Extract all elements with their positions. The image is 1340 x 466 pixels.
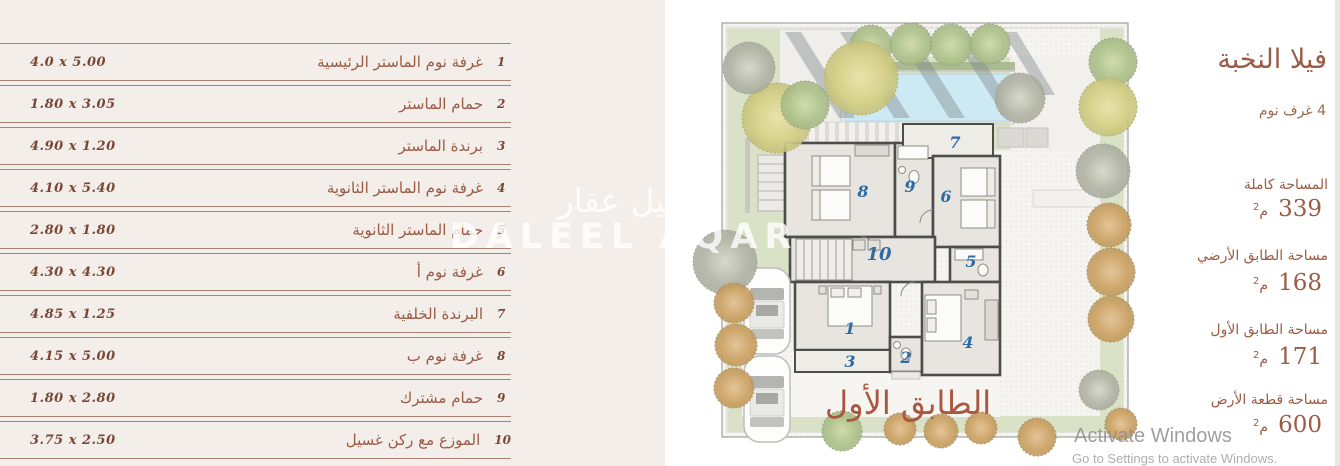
entry-steps — [892, 372, 920, 379]
ground-floor-area-label: مساحة الطابق الأرضي — [1197, 248, 1328, 264]
room-dimensions: 1.80 x 3.05 — [30, 97, 116, 112]
table-row: 1.80 x 3.05 2حمام الماستر — [0, 85, 511, 123]
window-edge-strip — [1335, 0, 1340, 466]
area-unit: م2 — [1253, 350, 1268, 368]
room-number: 5 — [497, 223, 511, 237]
room-dimensions: 4.30 x 4.30 — [30, 265, 116, 280]
tree — [1018, 418, 1056, 456]
area-unit: م2 — [1253, 418, 1268, 436]
table-row: 2.80 x 1.80 5حمام الماستر الثانوية — [0, 211, 511, 249]
tree — [1088, 296, 1134, 342]
room-label-3: 3 — [844, 352, 855, 371]
tree — [890, 23, 932, 65]
first-floor-area-label: مساحة الطابق الأول — [1210, 322, 1328, 338]
info-panel: فيلا النخبة 4 غرف نوم المساحة كاملة 339 … — [1180, 0, 1340, 466]
total-area-value: 339 م2 — [1253, 196, 1322, 222]
closet — [855, 145, 889, 156]
site-plan: الطابق الأول 1 2 3 4 5 6 7 8 9 10 — [665, 0, 1180, 466]
table-row: 4.90 x 1.20 3برندة الماستر — [0, 127, 511, 165]
room-dimensions: 4.15 x 5.00 — [30, 349, 116, 364]
closet — [985, 300, 998, 340]
tree — [824, 41, 898, 115]
room-name: غرفة نوم أ — [417, 263, 483, 281]
tree — [1087, 203, 1131, 247]
room-dimensions: 4.90 x 1.20 — [30, 139, 116, 154]
bathtub — [898, 146, 928, 159]
room-label-2: 2 — [899, 348, 911, 367]
room-number: 3 — [497, 139, 511, 153]
room-dimensions: 2.80 x 1.80 — [30, 223, 116, 238]
table-row: 3.75 x 2.50 10الموزع مع ركن غسيل — [0, 421, 511, 459]
first-floor-area-value: 171 م2 — [1253, 344, 1322, 370]
room-number: 6 — [497, 265, 511, 279]
plot-area-label: مساحة قطعة الأرض — [1211, 392, 1328, 408]
dimensions-panel: 4.0 x 5.00 1غرفة نوم الماستر الرئيسية 1.… — [0, 0, 665, 466]
room-number: 4 — [497, 181, 511, 195]
room-name: غرفة نوم الماستر الثانوية — [327, 179, 483, 197]
room-number: 10 — [494, 433, 511, 447]
tree — [723, 42, 775, 94]
area-number: 168 — [1278, 270, 1322, 296]
room-number: 2 — [497, 97, 511, 111]
table-row: 4.10 x 5.40 4غرفة نوم الماستر الثانوية — [0, 169, 511, 207]
room-dimensions: 3.75 x 2.50 — [30, 433, 116, 448]
room-name: حمام الماستر — [399, 95, 483, 113]
nightstand — [819, 286, 826, 294]
room-dimensions: 4.0 x 5.00 — [30, 55, 106, 70]
room-dimensions: 4.10 x 5.40 — [30, 181, 116, 196]
room-dimensions: 4.85 x 1.25 — [30, 307, 116, 322]
floorplan-brochure: 4.0 x 5.00 1غرفة نوم الماستر الرئيسية 1.… — [0, 0, 1340, 466]
interior-stairs — [796, 239, 852, 280]
sink — [899, 167, 906, 174]
table-row: 4.0 x 5.00 1غرفة نوم الماستر الرئيسية — [0, 43, 511, 81]
tree — [970, 24, 1010, 64]
floor-caption: الطابق الأول — [825, 383, 991, 422]
area-number: 339 — [1278, 196, 1322, 222]
room-dimensions: 1.80 x 2.80 — [30, 391, 116, 406]
room-name: الموزع مع ركن غسيل — [346, 431, 481, 449]
area-number: 171 — [1278, 344, 1322, 370]
room-number: 7 — [497, 307, 511, 321]
table-row: 4.85 x 1.25 7البرندة الخلفية — [0, 295, 511, 333]
nightstand — [874, 286, 881, 294]
room-name: غرفة نوم ب — [407, 347, 483, 365]
activate-windows-hint: Go to Settings to activate Windows. — [1072, 451, 1277, 466]
room-label-5: 5 — [965, 252, 976, 271]
table-row: 1.80 x 2.80 9حمام مشترك — [0, 379, 511, 417]
room-label-7: 7 — [949, 133, 960, 152]
table-row: 4.30 x 4.30 6غرفة نوم أ — [0, 253, 511, 291]
room-label-4: 4 — [962, 333, 973, 352]
paving-tiles — [998, 128, 1048, 147]
tree — [781, 81, 829, 129]
bedrooms-subtitle: 4 غرف نوم — [1259, 103, 1326, 119]
toilet — [978, 264, 988, 276]
tree — [1076, 144, 1130, 198]
tree — [1079, 370, 1119, 410]
nightstand — [965, 290, 978, 299]
car — [744, 356, 790, 442]
tree — [1079, 78, 1137, 136]
room-number: 8 — [497, 349, 511, 363]
room-label-10: 10 — [866, 244, 892, 265]
room-number: 9 — [497, 391, 511, 405]
plot-area-value: 600 م2 — [1253, 412, 1322, 438]
tree — [995, 73, 1045, 123]
tree — [714, 283, 754, 323]
tree — [693, 230, 757, 294]
area-number: 600 — [1278, 412, 1322, 438]
area-unit: م2 — [1253, 202, 1268, 220]
cabinet — [853, 240, 865, 250]
ground-floor-area-value: 168 م2 — [1253, 270, 1322, 296]
villa-title: فيلا النخبة — [1217, 44, 1327, 75]
room-label-1: 1 — [844, 319, 855, 338]
room-name: حمام مشترك — [400, 389, 483, 407]
room-name: البرندة الخلفية — [393, 305, 483, 323]
room-name: غرفة نوم الماستر الرئيسية — [317, 53, 483, 71]
outdoor-stairs — [758, 155, 784, 211]
room-label-9: 9 — [904, 177, 915, 196]
area-unit: م2 — [1253, 276, 1268, 294]
tree — [715, 324, 757, 366]
room-name: حمام الماستر الثانوية — [352, 221, 483, 239]
room-name: برندة الماستر — [399, 137, 483, 155]
total-area-label: المساحة كاملة — [1244, 177, 1328, 193]
tree — [714, 368, 754, 408]
room-dimensions-table: 4.0 x 5.00 1غرفة نوم الماستر الرئيسية 1.… — [0, 43, 511, 463]
tree — [1087, 248, 1135, 296]
room-label-8: 8 — [856, 182, 868, 201]
table-row: 4.15 x 5.00 8غرفة نوم ب — [0, 337, 511, 375]
room-number: 1 — [497, 55, 511, 69]
tree — [930, 24, 972, 66]
room-3-master-balcony — [795, 350, 890, 372]
room-label-6: 6 — [940, 187, 951, 206]
activate-windows-watermark: Activate Windows — [1074, 425, 1232, 448]
